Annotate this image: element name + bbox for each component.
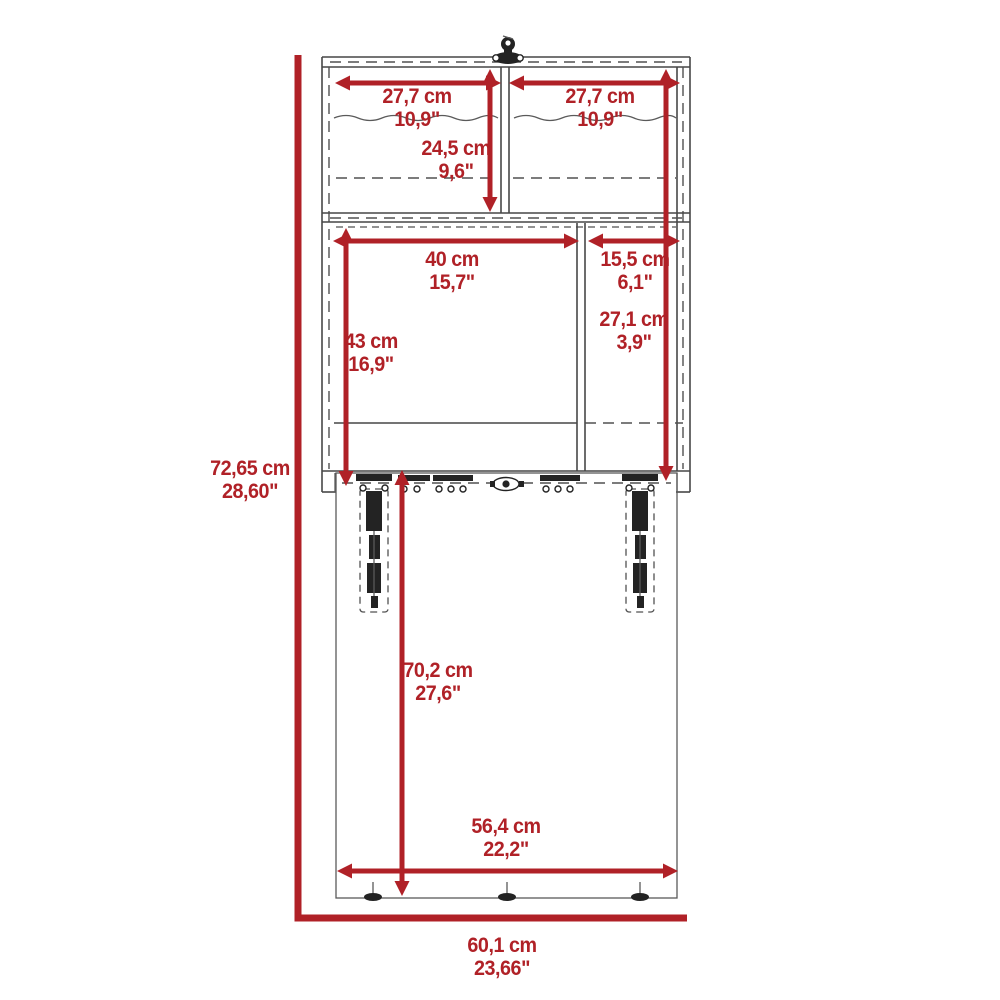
dim-value-inch: 22,2": [483, 838, 528, 861]
dim-value-cm: 27,7 cm: [565, 85, 634, 108]
dim-value-cm: 60,1 cm: [467, 934, 536, 957]
dim-value-inch: 16,9": [348, 353, 393, 376]
dim-arrow-door-width: [337, 864, 678, 879]
dim-value-cm: 40 cm: [425, 248, 479, 271]
dim-value-cm: 27,7 cm: [382, 85, 451, 108]
dim-label-middle-left-height: 43 cm 16,9": [344, 330, 398, 376]
dim-value-cm: 72,65 cm: [210, 457, 290, 480]
dimension-diagram: 27,7 cm 10,9" 27,7 cm 10,9" 24,5 cm 9,6"…: [0, 0, 1000, 1000]
dim-label-overall-width: 60,1 cm 23,66": [467, 934, 536, 980]
dim-arrow-middle-right-width: [588, 234, 680, 249]
dim-value-inch: 10,9": [394, 108, 439, 131]
dim-value-inch: 27,6": [415, 682, 460, 705]
dim-label-upper-height: 24,5 cm 9,6": [421, 137, 490, 183]
dim-value-cm: 24,5 cm: [421, 137, 490, 160]
dim-value-cm: 56,4 cm: [471, 815, 540, 838]
dim-value-inch: 6,1": [618, 271, 653, 294]
dim-value-inch: 15,7": [429, 271, 474, 294]
lock-icon: [493, 36, 523, 64]
dim-value-cm: 27,1 cm: [599, 308, 668, 331]
dim-label-top-left-width: 27,7 cm 10,9": [382, 85, 451, 131]
dim-value-inch: 10,9": [577, 108, 622, 131]
dim-label-middle-right-height: 27,1 cm 3,9": [599, 308, 668, 354]
cam-lock-fitting: [490, 478, 524, 491]
right-stay-hinge: [622, 474, 658, 612]
dim-label-middle-left-width: 40 cm 15,7": [425, 248, 479, 294]
dim-label-door-height: 70,2 cm 27,6": [403, 659, 472, 705]
dim-value-cm: 43 cm: [344, 330, 398, 353]
dim-value-inch: 28,60": [222, 480, 278, 503]
dim-label-middle-right-width: 15,5 cm 6,1": [600, 248, 669, 294]
foot-pin: [498, 882, 516, 901]
dim-value-inch: 9,6": [439, 160, 474, 183]
dim-value-inch: 23,66": [474, 957, 530, 980]
dim-label-top-right-width: 27,7 cm 10,9": [565, 85, 634, 131]
left-stay-hinge: [356, 474, 392, 612]
dim-value-cm: 70,2 cm: [403, 659, 472, 682]
foot-pin: [631, 882, 649, 901]
dim-label-door-width: 56,4 cm 22,2": [471, 815, 540, 861]
dim-arrow-middle-left-width: [333, 234, 579, 249]
dim-value-inch: 3,9": [617, 331, 652, 354]
dim-label-overall-height: 72,65 cm 28,60": [210, 457, 290, 503]
dim-value-cm: 15,5 cm: [600, 248, 669, 271]
foot-pin: [364, 882, 382, 901]
